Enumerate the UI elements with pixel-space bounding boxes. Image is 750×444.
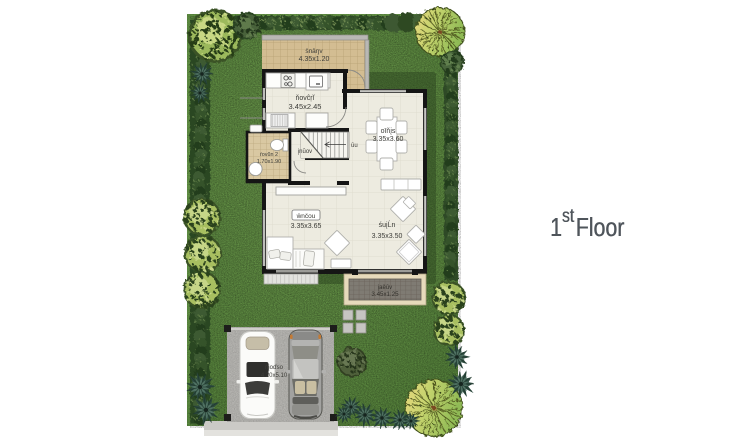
svg-text:ŕovŭn 2: ŕovŭn 2	[260, 152, 278, 158]
svg-text:ŵnčou: ŵnčou	[296, 213, 316, 220]
svg-text:3.45x1.25: 3.45x1.25	[371, 291, 399, 298]
svg-text:śuįĹn: śuįĹn	[379, 220, 396, 229]
svg-text:1.70x1.90: 1.70x1.90	[257, 159, 282, 165]
svg-text:3.45x2.45: 3.45x2.45	[289, 102, 322, 111]
svg-text:įnŭov: įnŭov	[298, 149, 312, 155]
svg-text:ňovĉŗĭ: ňovĉŗĭ	[295, 95, 315, 102]
svg-text:oīňįs: oīňįs	[381, 128, 396, 135]
svg-text:ňįoďsο: ňįoďsο	[265, 365, 284, 371]
svg-text:3.35x3.60: 3.35x3.60	[373, 136, 404, 143]
svg-text:3.35x3.50: 3.35x3.50	[372, 233, 403, 240]
svg-text:ūu: ūu	[351, 143, 358, 149]
svg-text:3.35x3.65: 3.35x3.65	[291, 223, 322, 230]
svg-text:4.20x5.10: 4.20x5.10	[261, 373, 288, 379]
svg-text:4.35x1.20: 4.35x1.20	[299, 56, 330, 63]
svg-text:ŝnāŋv: ŝnāŋv	[305, 48, 323, 55]
